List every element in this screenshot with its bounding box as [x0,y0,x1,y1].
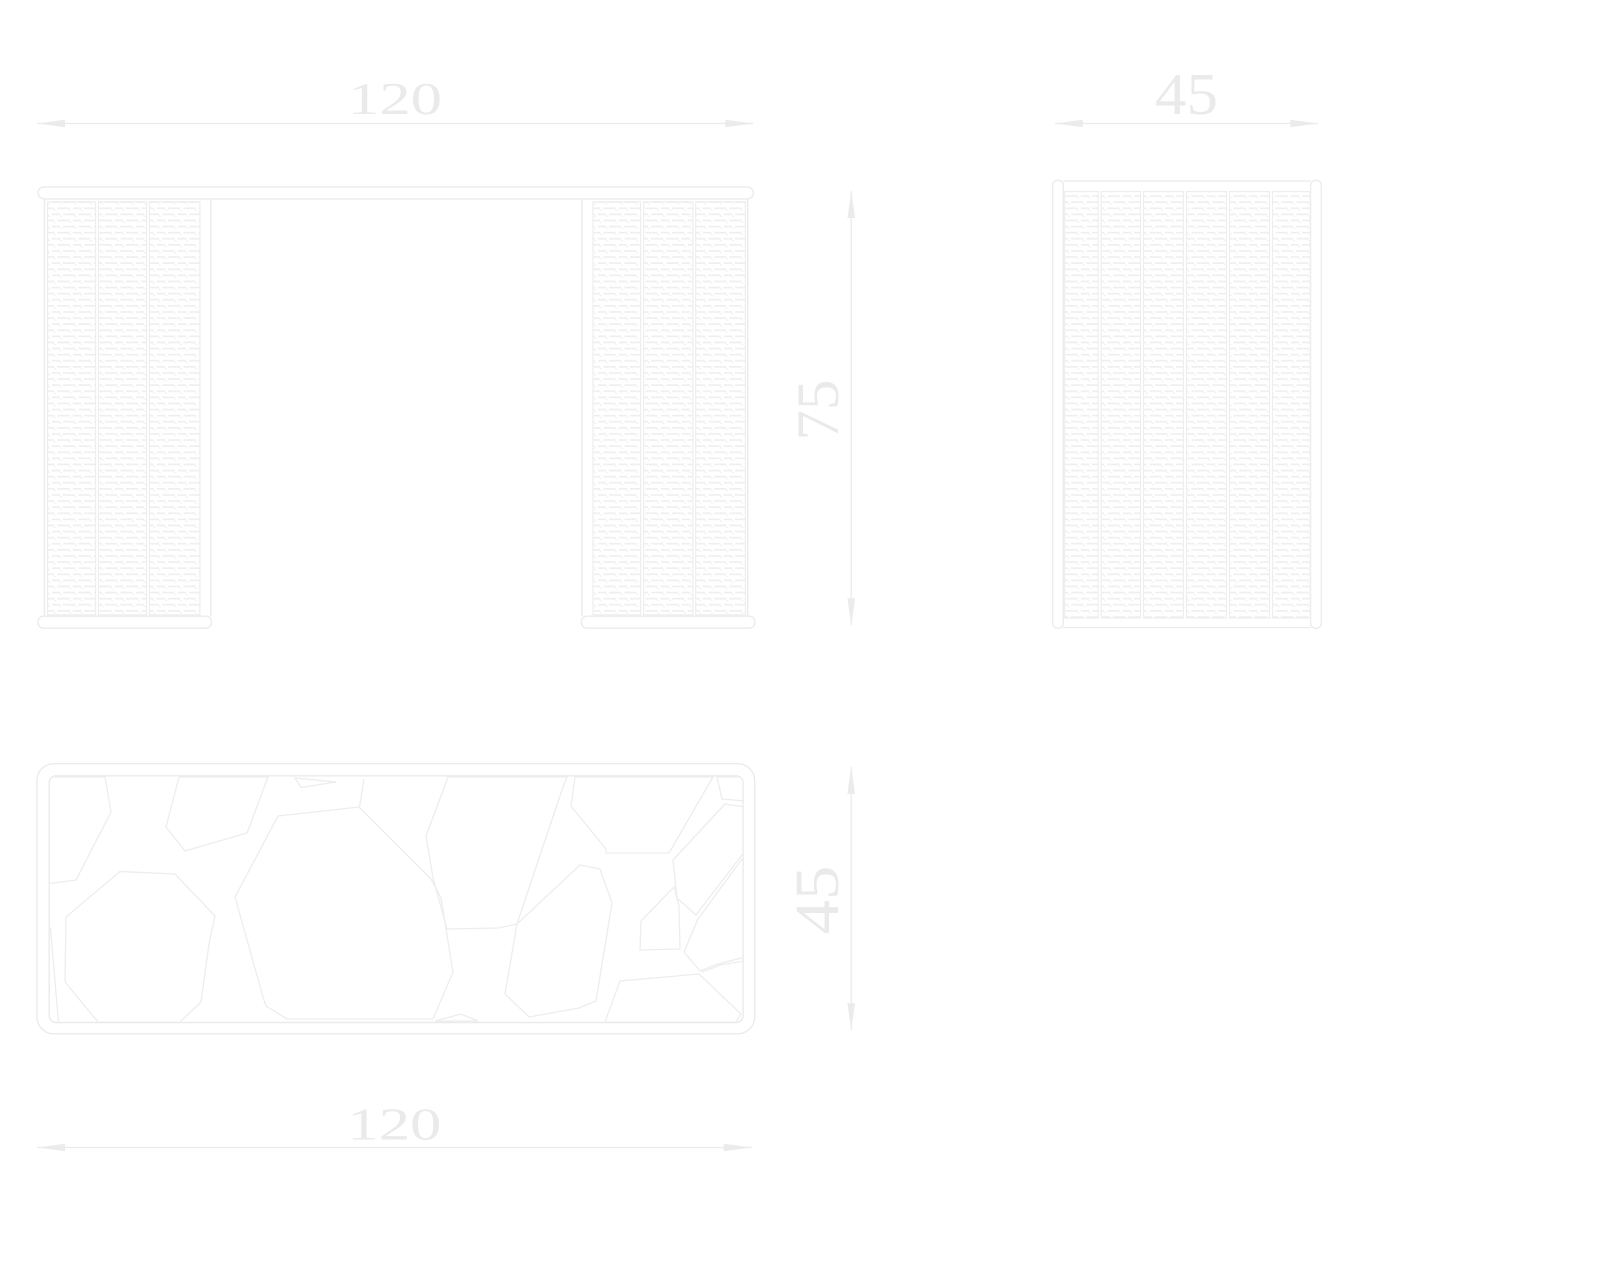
svg-text:45: 45 [784,866,852,935]
svg-text:45: 45 [1155,61,1218,127]
svg-text:120: 120 [347,1099,441,1150]
svg-text:75: 75 [785,380,852,441]
svg-text:120: 120 [348,73,442,124]
